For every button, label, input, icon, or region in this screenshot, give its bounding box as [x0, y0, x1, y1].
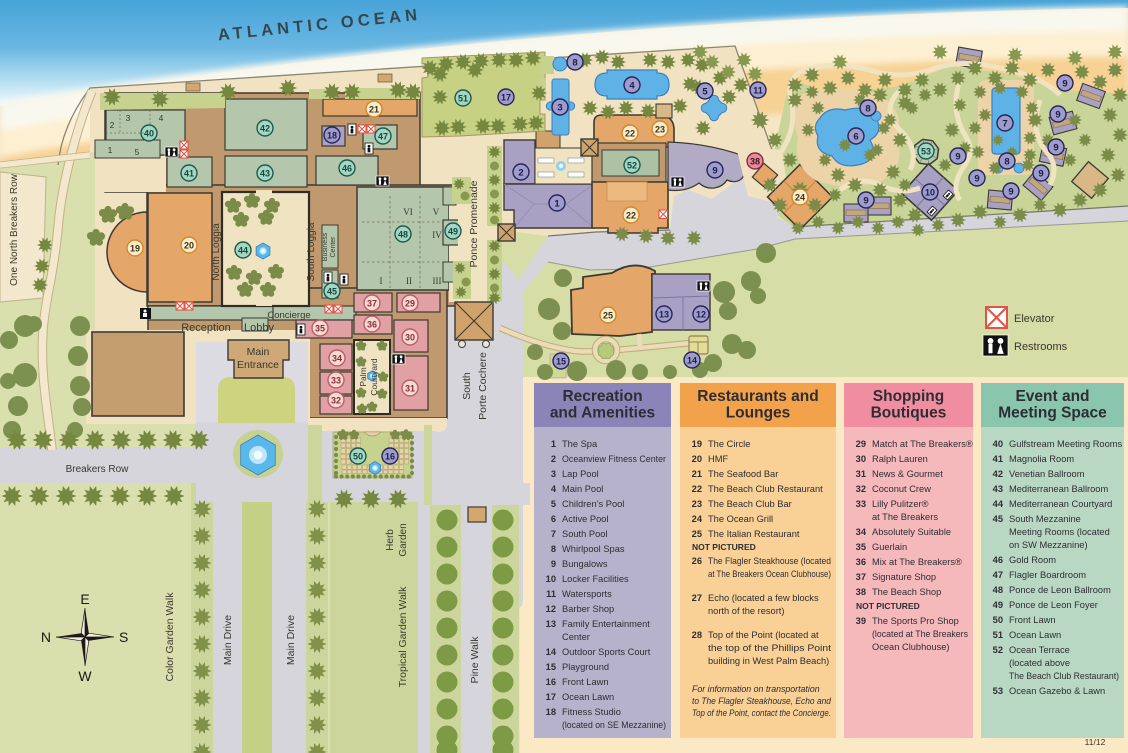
svg-text:The Seafood Bar: The Seafood Bar — [708, 469, 778, 479]
svg-text:19: 19 — [130, 243, 140, 253]
svg-text:38: 38 — [750, 156, 760, 166]
svg-text:The Spa: The Spa — [562, 439, 598, 449]
svg-text:15: 15 — [556, 356, 566, 366]
svg-text:The Beach Club Restaurant: The Beach Club Restaurant — [708, 484, 823, 494]
svg-text:25: 25 — [603, 310, 613, 320]
svg-text:For information on transportat: For information on transportation — [692, 684, 820, 694]
svg-text:IV: IV — [432, 230, 442, 240]
svg-text:Coconut Crew: Coconut Crew — [872, 484, 931, 494]
svg-text:53: 53 — [993, 686, 1003, 696]
svg-text:35: 35 — [315, 323, 325, 333]
svg-text:8: 8 — [572, 57, 577, 68]
svg-text:Garden: Garden — [398, 523, 409, 556]
svg-text:Bungalows: Bungalows — [562, 559, 608, 569]
svg-text:33: 33 — [331, 375, 341, 385]
svg-text:18: 18 — [327, 130, 337, 140]
svg-text:Magnolia Room: Magnolia Room — [1009, 454, 1074, 464]
svg-text:33: 33 — [856, 499, 866, 509]
svg-text:45: 45 — [327, 286, 337, 296]
svg-text:Absolutely Suitable: Absolutely Suitable — [872, 527, 951, 537]
svg-text:Family Entertainment: Family Entertainment — [562, 619, 650, 629]
svg-text:Restaurants and: Restaurants and — [697, 388, 818, 405]
svg-text:at The Breakers Ocean Clubhous: at The Breakers Ocean Clubhouse) — [708, 569, 831, 579]
svg-text:Porte Cochere: Porte Cochere — [477, 352, 489, 420]
svg-text:28: 28 — [692, 630, 702, 640]
svg-text:37: 37 — [367, 298, 377, 308]
svg-text:Lilly Pulitzer®: Lilly Pulitzer® — [872, 499, 929, 509]
svg-text:29: 29 — [405, 298, 415, 308]
svg-text:Flagler Boardroom: Flagler Boardroom — [1009, 570, 1086, 580]
svg-text:Lobby: Lobby — [244, 322, 274, 334]
svg-text:12: 12 — [696, 309, 706, 319]
svg-text:Fitness Studio: Fitness Studio — [562, 707, 621, 717]
svg-text:4: 4 — [551, 484, 557, 494]
svg-text:14: 14 — [687, 355, 697, 365]
svg-text:at The Breakers: at The Breakers — [872, 512, 938, 522]
svg-text:News & Gourmet: News & Gourmet — [872, 469, 943, 479]
svg-text:NOT PICTURED: NOT PICTURED — [856, 601, 920, 611]
svg-text:Elevator: Elevator — [1014, 313, 1055, 325]
svg-text:10: 10 — [546, 574, 556, 584]
svg-text:Herb: Herb — [385, 529, 396, 551]
svg-text:Main: Main — [247, 346, 270, 358]
svg-text:42: 42 — [993, 469, 1003, 479]
svg-text:V: V — [433, 207, 440, 217]
svg-text:9: 9 — [1008, 186, 1013, 197]
svg-text:22: 22 — [626, 210, 636, 220]
svg-text:7: 7 — [551, 529, 556, 539]
svg-text:7: 7 — [1002, 118, 1007, 129]
svg-text:9: 9 — [863, 195, 868, 206]
svg-text:20: 20 — [692, 454, 702, 464]
svg-text:Signature Shop: Signature Shop — [872, 572, 936, 582]
svg-text:40: 40 — [993, 439, 1003, 449]
svg-text:5: 5 — [702, 86, 708, 97]
svg-text:One North Breakers Row: One North Breakers Row — [9, 173, 20, 285]
svg-text:47: 47 — [993, 570, 1003, 580]
svg-text:6: 6 — [853, 131, 858, 142]
svg-text:South Mezzanine: South Mezzanine — [1009, 514, 1081, 524]
svg-text:9: 9 — [551, 559, 556, 569]
svg-text:26: 26 — [692, 556, 702, 566]
svg-text:39: 39 — [856, 616, 866, 626]
svg-text:HMF: HMF — [708, 454, 728, 464]
svg-text:23: 23 — [655, 124, 665, 134]
svg-text:9: 9 — [955, 151, 960, 162]
svg-text:Meeting Space: Meeting Space — [998, 405, 1107, 422]
svg-text:South Loggia: South Loggia — [306, 222, 317, 281]
svg-text:Concierge: Concierge — [267, 310, 310, 321]
svg-text:52: 52 — [627, 160, 637, 170]
svg-text:Lounges: Lounges — [726, 405, 791, 422]
svg-text:46: 46 — [993, 555, 1003, 565]
svg-text:2: 2 — [518, 167, 523, 178]
svg-text:Barber Shop: Barber Shop — [562, 604, 614, 614]
svg-text:10: 10 — [925, 187, 935, 197]
svg-text:1: 1 — [108, 145, 113, 155]
svg-text:Business: Business — [322, 232, 329, 261]
svg-text:South Pool: South Pool — [562, 529, 608, 539]
svg-text:14: 14 — [546, 647, 557, 657]
svg-text:Event and: Event and — [1015, 388, 1089, 405]
svg-text:31: 31 — [856, 469, 866, 479]
svg-text:The Sports Pro Shop: The Sports Pro Shop — [872, 616, 959, 626]
svg-text:25: 25 — [692, 529, 702, 539]
svg-text:The Beach Shop: The Beach Shop — [872, 587, 941, 597]
svg-text:31: 31 — [405, 383, 415, 393]
svg-text:43: 43 — [993, 484, 1003, 494]
svg-text:Outdoor Sports Court: Outdoor Sports Court — [562, 647, 651, 657]
svg-text:53: 53 — [921, 146, 931, 156]
svg-text:E: E — [80, 591, 89, 607]
svg-text:30: 30 — [405, 332, 415, 342]
svg-text:8: 8 — [551, 544, 556, 554]
svg-text:29: 29 — [856, 439, 866, 449]
svg-text:Main Pool: Main Pool — [562, 484, 603, 494]
svg-text:2: 2 — [551, 454, 556, 464]
svg-text:51: 51 — [993, 630, 1003, 640]
svg-text:South: South — [461, 372, 473, 400]
svg-text:Palm: Palm — [358, 367, 368, 386]
svg-text:NOT PICTURED: NOT PICTURED — [692, 542, 756, 552]
svg-text:Restrooms: Restrooms — [1014, 341, 1068, 353]
svg-text:8: 8 — [865, 103, 870, 114]
svg-text:23: 23 — [692, 499, 702, 509]
svg-text:Active Pool: Active Pool — [562, 514, 609, 524]
svg-text:(located at The Breakers: (located at The Breakers — [872, 629, 968, 639]
svg-text:Meeting Rooms (located: Meeting Rooms (located — [1009, 527, 1110, 537]
svg-text:13: 13 — [546, 619, 556, 629]
svg-text:Mediterranean Courtyard: Mediterranean Courtyard — [1009, 499, 1112, 509]
svg-text:43: 43 — [260, 168, 270, 178]
svg-text:Breakers Row: Breakers Row — [66, 464, 130, 475]
svg-text:Pine Walk: Pine Walk — [469, 636, 481, 684]
svg-text:9: 9 — [974, 173, 979, 184]
svg-text:24: 24 — [795, 192, 805, 202]
svg-text:Ocean Clubhouse): Ocean Clubhouse) — [872, 642, 950, 652]
svg-text:S: S — [119, 629, 128, 645]
svg-text:1: 1 — [554, 198, 560, 209]
svg-text:9: 9 — [1062, 78, 1067, 89]
svg-text:Main Drive: Main Drive — [222, 615, 234, 665]
svg-text:49: 49 — [993, 600, 1003, 610]
svg-text:Ralph Lauren: Ralph Lauren — [872, 454, 928, 464]
svg-text:(located above: (located above — [1009, 658, 1070, 668]
svg-text:Main Drive: Main Drive — [285, 615, 297, 665]
svg-text:3: 3 — [557, 102, 562, 113]
svg-text:Ocean Lawn: Ocean Lawn — [562, 692, 614, 702]
svg-text:44: 44 — [238, 245, 248, 255]
svg-text:I: I — [380, 276, 383, 286]
svg-text:36: 36 — [367, 319, 377, 329]
svg-text:27: 27 — [692, 593, 702, 603]
svg-text:building in West Palm Beach): building in West Palm Beach) — [708, 656, 829, 666]
svg-text:22: 22 — [692, 484, 702, 494]
svg-text:51: 51 — [458, 93, 468, 103]
svg-text:north of the resort): north of the resort) — [708, 606, 784, 616]
svg-text:Entrance: Entrance — [237, 359, 279, 371]
svg-text:46: 46 — [342, 163, 352, 173]
svg-text:36: 36 — [856, 557, 866, 567]
svg-text:North Loggia: North Loggia — [211, 223, 222, 281]
svg-text:15: 15 — [546, 662, 556, 672]
svg-text:9: 9 — [712, 165, 717, 176]
svg-text:Front Lawn: Front Lawn — [562, 677, 609, 687]
svg-text:4: 4 — [159, 113, 164, 123]
svg-text:Ponce Promenade: Ponce Promenade — [468, 180, 480, 267]
svg-text:19: 19 — [692, 439, 702, 449]
svg-text:9: 9 — [1053, 142, 1058, 153]
svg-text:32: 32 — [331, 395, 341, 405]
svg-text:Tropical Garden Walk: Tropical Garden Walk — [397, 586, 409, 688]
svg-text:16: 16 — [546, 677, 556, 687]
svg-text:21: 21 — [369, 104, 379, 114]
svg-text:Whirlpool Spas: Whirlpool Spas — [562, 544, 625, 554]
svg-text:(located on SE Mezzanine): (located on SE Mezzanine) — [562, 720, 666, 730]
svg-text:45: 45 — [993, 514, 1003, 524]
svg-text:11: 11 — [753, 85, 763, 95]
svg-text:Ocean Lawn: Ocean Lawn — [1009, 630, 1061, 640]
svg-text:The Ocean Grill: The Ocean Grill — [708, 514, 773, 524]
svg-text:44: 44 — [993, 499, 1004, 509]
svg-text:Center: Center — [562, 632, 590, 642]
svg-text:Venetian Ballroom: Venetian Ballroom — [1009, 469, 1085, 479]
svg-text:Gold Room: Gold Room — [1009, 555, 1056, 565]
svg-text:8: 8 — [1004, 156, 1009, 167]
svg-text:Children’s Pool: Children’s Pool — [562, 499, 624, 509]
svg-text:49: 49 — [448, 226, 458, 236]
svg-text:50: 50 — [353, 451, 363, 461]
svg-text:11/12: 11/12 — [1085, 737, 1106, 747]
svg-text:3: 3 — [126, 113, 131, 123]
svg-text:9: 9 — [1038, 168, 1043, 179]
svg-text:Boutiques: Boutiques — [871, 405, 947, 422]
svg-text:Ocean Gazebo & Lawn: Ocean Gazebo & Lawn — [1009, 686, 1105, 696]
svg-text:16: 16 — [385, 451, 395, 461]
svg-text:34: 34 — [332, 353, 342, 363]
svg-text:N: N — [41, 629, 51, 645]
svg-text:52: 52 — [993, 645, 1003, 655]
svg-text:W: W — [78, 668, 92, 684]
svg-text:48: 48 — [993, 585, 1003, 595]
svg-text:Ocean Terrace: Ocean Terrace — [1009, 645, 1070, 655]
svg-text:22: 22 — [625, 128, 635, 138]
svg-text:The Flagler Steakhouse (locate: The Flagler Steakhouse (located — [708, 556, 831, 566]
svg-text:48: 48 — [398, 229, 408, 239]
svg-text:32: 32 — [856, 484, 866, 494]
svg-text:Gulfstream Meeting Rooms: Gulfstream Meeting Rooms — [1009, 439, 1123, 449]
svg-text:Locker Facilities: Locker Facilities — [562, 574, 629, 584]
svg-text:41: 41 — [184, 168, 194, 178]
svg-text:Reception: Reception — [181, 322, 231, 334]
svg-text:Echo (located a few blocks: Echo (located a few blocks — [708, 593, 819, 603]
svg-text:34: 34 — [856, 527, 867, 537]
svg-text:4: 4 — [629, 80, 635, 91]
svg-text:13: 13 — [659, 309, 669, 319]
svg-text:on SW Mezzanine): on SW Mezzanine) — [1009, 540, 1088, 550]
svg-text:1: 1 — [551, 439, 556, 449]
svg-text:The Beach Club Restaurant): The Beach Club Restaurant) — [1009, 671, 1119, 681]
svg-text:III: III — [433, 276, 442, 286]
svg-text:and Amenities: and Amenities — [550, 405, 655, 422]
svg-text:5: 5 — [135, 147, 140, 157]
svg-text:17: 17 — [546, 692, 556, 702]
svg-text:20: 20 — [184, 240, 194, 250]
svg-text:6: 6 — [551, 514, 556, 524]
svg-text:Mediterranean Ballroom: Mediterranean Ballroom — [1009, 484, 1108, 494]
svg-text:Playground: Playground — [562, 662, 609, 672]
svg-text:The Beach Club Bar: The Beach Club Bar — [708, 499, 792, 509]
svg-text:Courtyard: Courtyard — [369, 358, 379, 396]
svg-text:17: 17 — [501, 92, 511, 102]
svg-text:5: 5 — [551, 499, 556, 509]
svg-text:Recreation: Recreation — [562, 388, 642, 405]
svg-text:24: 24 — [692, 514, 703, 524]
svg-text:30: 30 — [856, 454, 866, 464]
svg-text:Oceanview Fitness Center: Oceanview Fitness Center — [562, 454, 666, 464]
svg-text:35: 35 — [856, 542, 866, 552]
svg-text:2: 2 — [110, 120, 115, 130]
svg-text:Color Garden Walk: Color Garden Walk — [164, 592, 176, 682]
svg-text:Lap Pool: Lap Pool — [562, 469, 599, 479]
svg-text:50: 50 — [993, 615, 1003, 625]
svg-text:Top of the Point, contact the: Top of the Point, contact the Concierge. — [692, 708, 831, 718]
svg-text:11: 11 — [546, 589, 556, 599]
svg-text:42: 42 — [260, 123, 270, 133]
svg-text:Shopping: Shopping — [873, 388, 944, 405]
svg-text:18: 18 — [546, 707, 556, 717]
svg-text:Match at The Breakers®: Match at The Breakers® — [872, 439, 973, 449]
svg-text:21: 21 — [692, 469, 702, 479]
svg-text:3: 3 — [551, 469, 556, 479]
svg-text:Center: Center — [330, 236, 337, 258]
svg-text:Mix at The Breakers®: Mix at The Breakers® — [872, 557, 962, 567]
svg-text:Ponce de Leon Foyer: Ponce de Leon Foyer — [1009, 600, 1098, 610]
svg-text:II: II — [406, 276, 412, 286]
svg-text:Ponce de Leon Ballroom: Ponce de Leon Ballroom — [1009, 585, 1111, 595]
svg-text:37: 37 — [856, 572, 866, 582]
svg-text:40: 40 — [144, 128, 154, 138]
svg-text:The Italian Restaurant: The Italian Restaurant — [708, 529, 800, 539]
svg-text:Top of the Point (located at: Top of the Point (located at — [708, 630, 819, 640]
svg-text:the top of the Phillips Point: the top of the Phillips Point — [708, 643, 831, 653]
svg-text:to The Flagler Steakhouse, Ech: to The Flagler Steakhouse, Echo and — [692, 696, 832, 706]
svg-text:Front Lawn: Front Lawn — [1009, 615, 1056, 625]
svg-text:47: 47 — [378, 131, 388, 141]
svg-text:Watersports: Watersports — [562, 589, 612, 599]
svg-text:12: 12 — [546, 604, 556, 614]
svg-text:9: 9 — [1055, 109, 1060, 120]
svg-text:VI: VI — [403, 207, 413, 217]
svg-text:38: 38 — [856, 587, 866, 597]
svg-text:The Circle: The Circle — [708, 439, 750, 449]
svg-text:41: 41 — [993, 454, 1003, 464]
svg-text:Guerlain: Guerlain — [872, 542, 907, 552]
